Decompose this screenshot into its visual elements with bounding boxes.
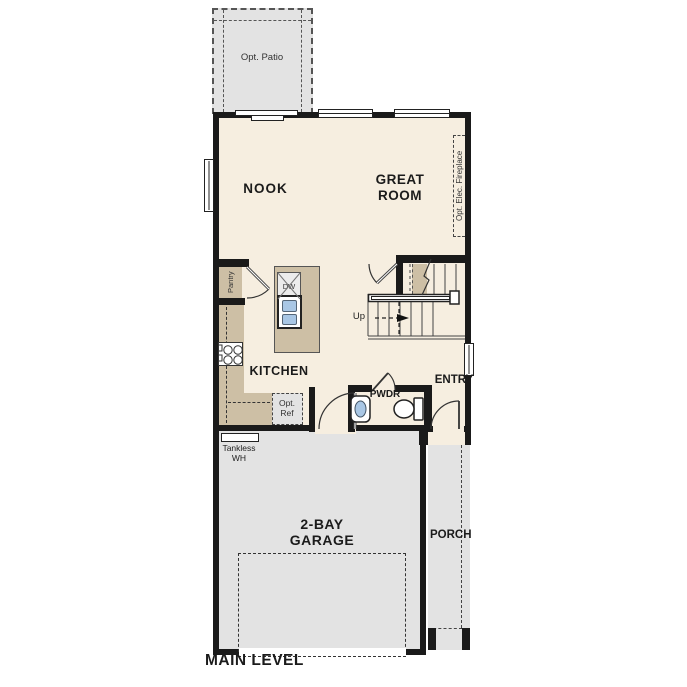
main-level-title: MAIN LEVEL (205, 652, 355, 670)
fridge-nook-wall-stub (309, 387, 315, 432)
up-label: Up (350, 311, 368, 322)
patio-inner-line-top (214, 20, 311, 21)
nook-label: NOOK (228, 181, 303, 196)
driveway-outline (238, 553, 406, 657)
window-top-greatroom (394, 109, 450, 118)
stairwell-top-wall (396, 255, 466, 263)
island-sink-bowl-2 (282, 314, 297, 325)
range (218, 342, 243, 366)
stairwell-wall-stub (396, 255, 403, 296)
pantry-label: Pantry (226, 272, 235, 294)
window-left-nook (204, 159, 214, 212)
great-room-label: GREAT ROOM (358, 172, 442, 204)
window-right-entry (464, 343, 474, 376)
porch-area (428, 443, 470, 650)
dishwasher-label-wrap: DW (278, 282, 300, 291)
pantry-top-wall (213, 259, 249, 267)
pantry-bottom-wall (213, 298, 245, 305)
kitchen-label: KITCHEN (243, 364, 315, 378)
entry-label: ENTRY (433, 374, 475, 386)
porch-label: PORCH (430, 529, 470, 541)
pwdr-left-wall (348, 385, 355, 432)
island-sink-unit (277, 295, 302, 329)
pantry-closet: Pantry (219, 267, 242, 298)
island-sink-bowl-1 (282, 300, 297, 312)
upper-cabinet-dash-h (228, 402, 270, 403)
opt-fireplace-zone: Opt. Elec. Fireplace (453, 135, 465, 237)
porch-post-right (462, 628, 470, 650)
entry-left-wall-stub (419, 425, 428, 445)
garage-label: 2-BAY GARAGE (281, 516, 363, 548)
tankless-wh-label: Tankless WH (215, 443, 263, 463)
opt-fireplace-label: Opt. Elec. Fireplace (455, 151, 464, 221)
water-heater (221, 433, 259, 442)
opt-patio-label: Opt. Patio (217, 52, 307, 63)
stair-wall-strip (412, 264, 427, 294)
right-wall-extension (465, 432, 471, 445)
entry-threshold (427, 432, 465, 445)
sliding-door-panel-inner (251, 115, 284, 121)
pwdr-label: PWDR (364, 389, 406, 400)
dishwasher-label: DW (283, 282, 296, 291)
window-top-nook (318, 109, 373, 118)
opt-ref-label: Opt. Ref (279, 398, 295, 418)
opt-ref-box: Opt. Ref (272, 393, 303, 425)
porch-post-left (428, 628, 436, 650)
pantry-label-wrap: Pantry (219, 267, 242, 298)
opt-ref-label-wrap: Opt. Ref (276, 398, 298, 418)
opt-fireplace-label-wrap: Opt. Elec. Fireplace (454, 136, 465, 236)
floor-plan: Pantry DW Opt. Elec. Fireplace Opt. Ref (0, 0, 687, 687)
